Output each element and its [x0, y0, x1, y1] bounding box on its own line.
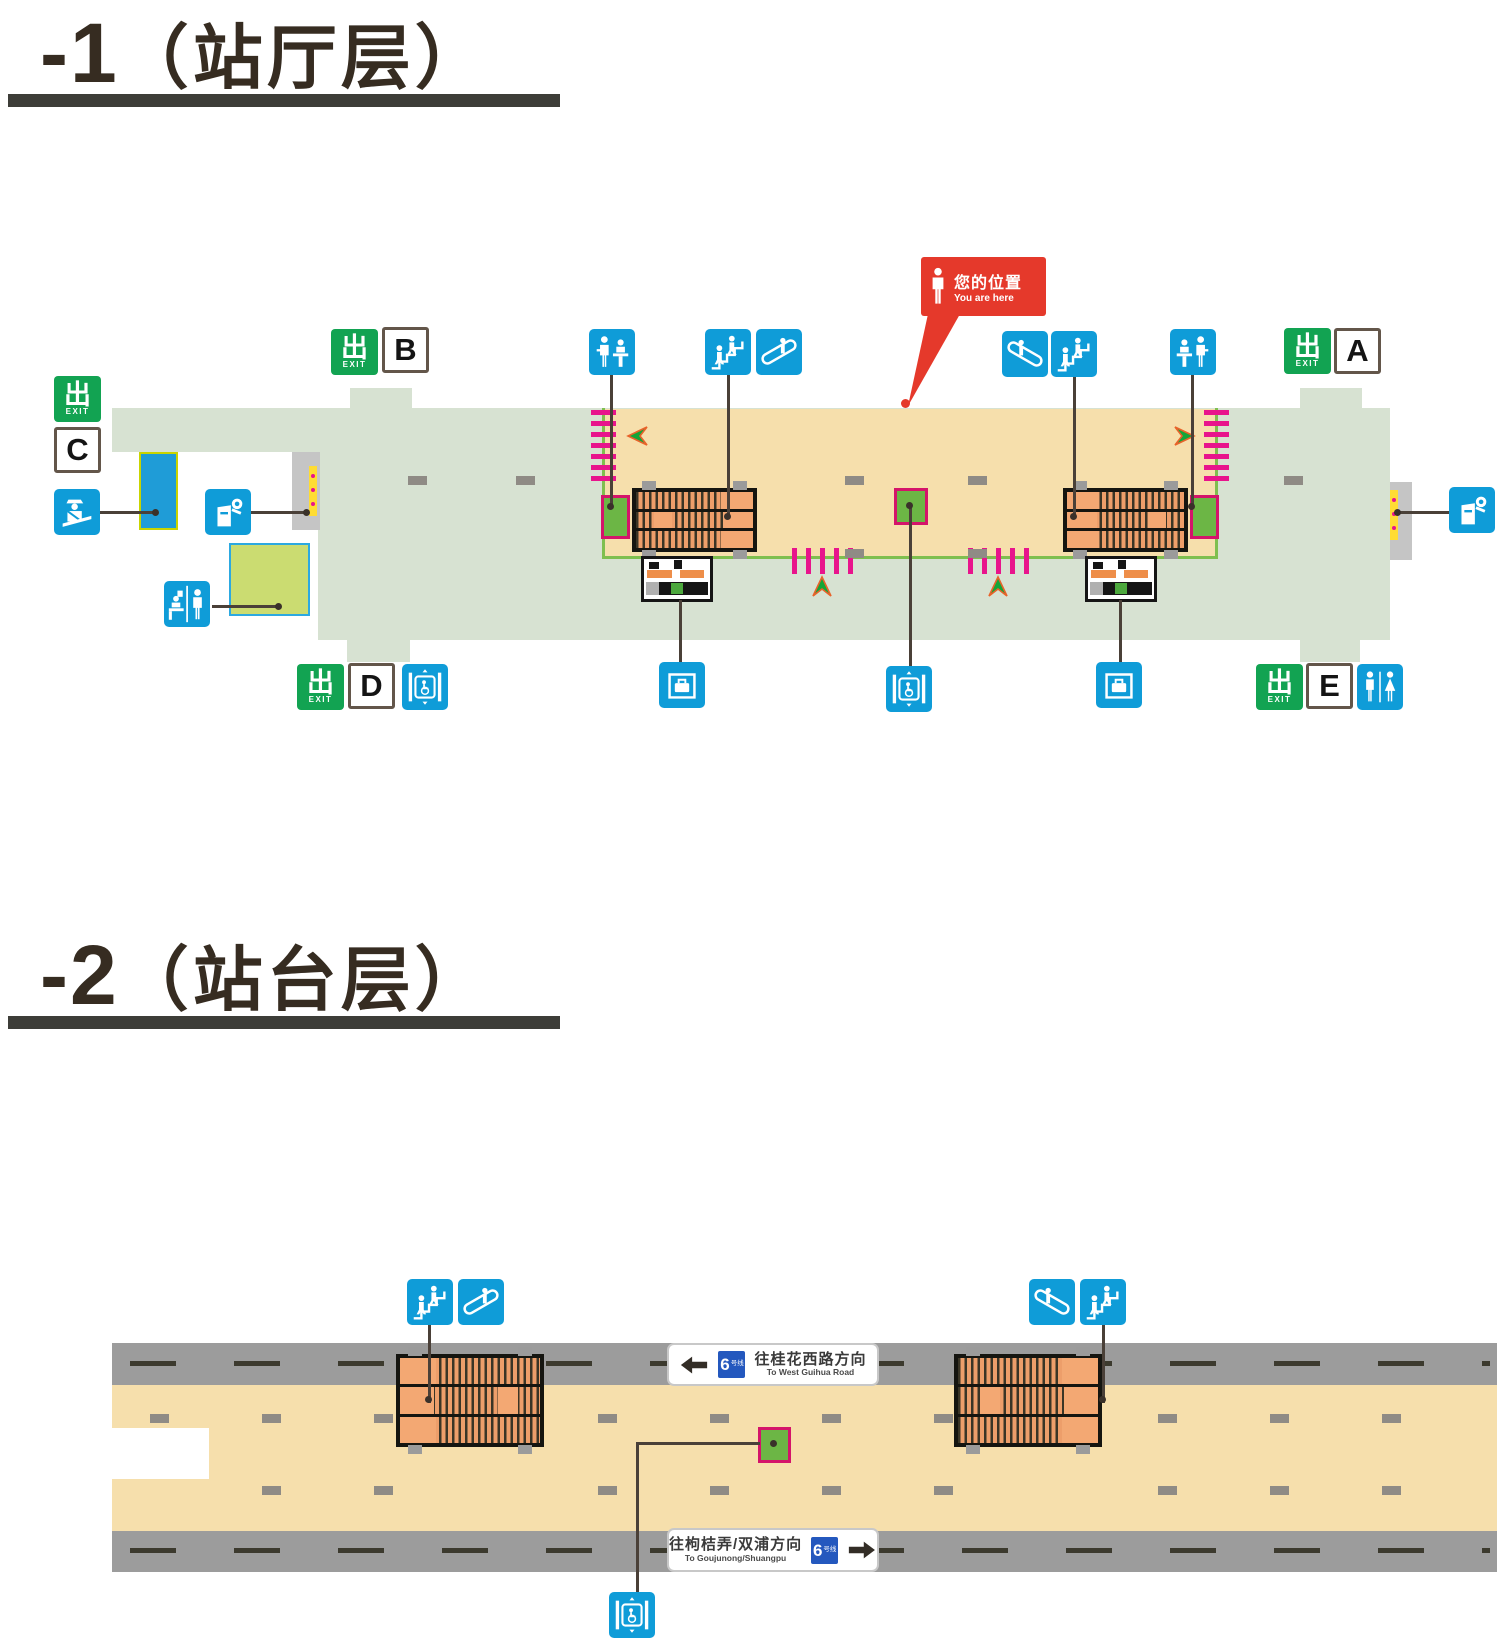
column	[598, 1414, 617, 1423]
line-suffix: 号线	[731, 1361, 744, 1368]
concourse-title-number: -1	[40, 6, 119, 100]
exit-label-e: E	[1306, 663, 1353, 709]
line-suffix: 号线	[823, 1547, 836, 1554]
direction-down-zh: 往枸桔弄/双浦方向	[669, 1536, 802, 1553]
stair-escalator-block-platform-right	[954, 1354, 1102, 1447]
escalator-icon	[1029, 1279, 1075, 1325]
column	[1382, 1414, 1401, 1423]
escalator-icon	[756, 329, 802, 375]
station-floor-map: -1（站厅层）	[0, 0, 1500, 1640]
exit-b-passage	[350, 388, 412, 409]
direction-down-en: To Goujunong/Shuangpu	[685, 1554, 786, 1564]
platform-title-name: （站台层）	[119, 941, 489, 1019]
column	[1382, 1486, 1401, 1495]
line-6-badge: 6 号线	[718, 1351, 745, 1378]
column	[1270, 1486, 1289, 1495]
toilet-icon	[1357, 664, 1403, 710]
leader	[1073, 377, 1076, 518]
stairs-icon	[705, 329, 751, 375]
escalator-icon	[1002, 331, 1048, 377]
arrow-left-icon	[679, 1354, 709, 1376]
column	[262, 1414, 281, 1423]
exit-sign-a: 出 EXIT	[1284, 328, 1331, 374]
column	[408, 476, 427, 485]
direction-sign-down: 往枸桔弄/双浦方向 To Goujunong/Shuangpu 6 号线	[667, 1528, 879, 1572]
police-post-icon	[54, 489, 100, 535]
accessible-elevator-icon	[402, 664, 448, 710]
leader	[212, 605, 280, 608]
ticket-vending-machine-icon	[1449, 487, 1495, 533]
direction-sign-up: 6 号线 往桂花西路方向 To West Guihua Road	[667, 1343, 879, 1386]
column	[1158, 1486, 1177, 1495]
exit-zh: 出	[341, 335, 368, 362]
leader	[636, 1442, 760, 1445]
exit-label-b: B	[382, 327, 429, 373]
concourse-title-underline	[8, 94, 560, 107]
stairs-icon	[407, 1279, 453, 1325]
customer-service-center-icon	[164, 581, 210, 627]
column	[934, 1414, 953, 1423]
column	[598, 1486, 617, 1495]
leader	[727, 375, 730, 518]
leader	[909, 505, 912, 666]
leader	[1191, 375, 1194, 508]
exit-arrow-up-icon	[812, 574, 832, 598]
column	[1158, 1414, 1177, 1423]
column	[516, 476, 535, 485]
exit-label-d: D	[348, 663, 395, 709]
stairs-icon	[1051, 331, 1097, 377]
exit-zh: 出	[1266, 670, 1293, 697]
line-number: 6	[813, 1542, 822, 1559]
stairs-icon	[1080, 1279, 1126, 1325]
column	[1270, 1414, 1289, 1423]
exit-zh: 出	[307, 670, 334, 697]
leader	[636, 1442, 639, 1594]
line-6-badge: 6 号线	[811, 1537, 838, 1564]
exit-en: EXIT	[343, 360, 367, 369]
column	[968, 476, 987, 485]
column	[934, 1486, 953, 1495]
exit-sign-b: 出 EXIT	[331, 329, 378, 375]
wide-gate-right	[1190, 495, 1219, 539]
accessible-elevator-icon	[609, 1592, 655, 1638]
platform-title: -2（站台层）	[40, 924, 489, 1025]
exit-en: EXIT	[1268, 695, 1292, 704]
exit-zh: 出	[64, 382, 91, 409]
stair-escalator-block-left	[632, 488, 757, 552]
leader	[679, 600, 682, 662]
you-are-here-zh: 您的位置	[954, 269, 1022, 293]
arrow-right-icon	[847, 1539, 877, 1561]
luggage-security-check-icon	[1096, 662, 1142, 708]
ticket-vending-machine-icon	[205, 489, 251, 535]
concourse-title-name: （站厅层）	[119, 19, 489, 97]
column	[968, 549, 987, 558]
exit-label-a: A	[1334, 328, 1381, 374]
wide-gate-left	[601, 495, 630, 539]
exit-en: EXIT	[309, 695, 333, 704]
column	[374, 1486, 393, 1495]
exit-d-passage	[347, 639, 410, 662]
exit-arrow-up-icon	[988, 574, 1008, 598]
column	[845, 476, 864, 485]
exit-zh: 出	[1294, 334, 1321, 361]
concourse-unpaid-band-left	[112, 408, 318, 452]
service-counter-icon	[589, 329, 635, 375]
column	[710, 1414, 729, 1423]
service-counter-icon	[1170, 329, 1216, 375]
column	[1284, 476, 1303, 485]
leader	[100, 511, 156, 514]
stair-escalator-block-platform-left	[396, 1354, 544, 1447]
tvm-bank-left	[309, 466, 317, 516]
exit-a-passage	[1300, 388, 1362, 409]
exit-sign-d: 出 EXIT	[297, 664, 344, 710]
exit-label-c: C	[54, 427, 101, 473]
column	[845, 549, 864, 558]
leader	[428, 1325, 431, 1403]
person-icon	[929, 266, 947, 308]
leader	[1397, 511, 1451, 514]
police-room	[139, 452, 178, 530]
you-are-here-dot	[901, 399, 910, 408]
column	[150, 1414, 169, 1423]
leader	[251, 511, 308, 514]
platform-area	[112, 1385, 1497, 1531]
leader	[610, 375, 613, 508]
direction-up-en: To West Guihua Road	[767, 1368, 855, 1378]
column	[710, 1486, 729, 1495]
escalator-icon	[458, 1279, 504, 1325]
xray-machine-left	[641, 556, 713, 602]
exit-en: EXIT	[66, 407, 90, 416]
you-are-here-pointer	[898, 314, 962, 406]
you-are-here-callout: 您的位置 You are here	[921, 257, 1046, 316]
column	[822, 1414, 841, 1423]
exit-sign-c: 出 EXIT	[54, 376, 101, 422]
enter-arrow-left-icon	[625, 426, 649, 446]
platform-title-underline	[8, 1016, 560, 1029]
column	[262, 1486, 281, 1495]
exit-e-passage	[1300, 639, 1360, 662]
column	[822, 1486, 841, 1495]
leader	[1102, 1325, 1105, 1403]
you-are-here-en: You are here	[954, 293, 1022, 304]
platform-title-number: -2	[40, 928, 119, 1022]
xray-machine-right	[1085, 556, 1157, 602]
exit-sign-e: 出 EXIT	[1256, 664, 1303, 710]
exit-en: EXIT	[1296, 359, 1320, 368]
line-number: 6	[720, 1356, 729, 1373]
concourse-title: -1（站厅层）	[40, 2, 489, 103]
accessible-elevator-icon	[886, 666, 932, 712]
stair-escalator-block-right	[1063, 488, 1188, 552]
direction-up-zh: 往桂花西路方向	[754, 1351, 866, 1368]
platform-notch	[112, 1428, 209, 1479]
luggage-security-check-icon	[659, 662, 705, 708]
column	[374, 1414, 393, 1423]
leader	[1119, 600, 1122, 662]
